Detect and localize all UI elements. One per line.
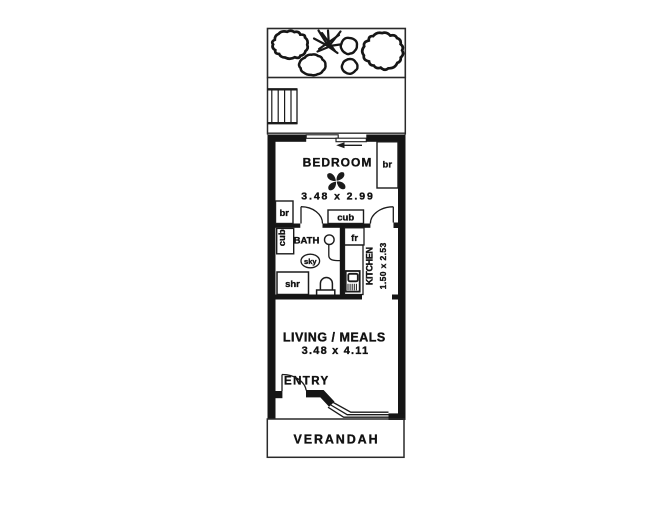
svg-text:cub: cub xyxy=(337,213,354,224)
svg-text:shr: shr xyxy=(285,279,300,290)
svg-text:br: br xyxy=(279,208,289,219)
svg-text:KITCHEN: KITCHEN xyxy=(364,247,374,285)
svg-text:LIVING / MEALS: LIVING / MEALS xyxy=(283,330,386,344)
svg-text:BATH: BATH xyxy=(294,236,320,247)
svg-text:VERANDAH: VERANDAH xyxy=(293,433,379,447)
svg-text:sky: sky xyxy=(304,257,317,266)
svg-text:3.48 x 2.99: 3.48 x 2.99 xyxy=(301,191,374,203)
svg-text:BEDROOM: BEDROOM xyxy=(303,156,373,170)
svg-text:1.50 x 2.53: 1.50 x 2.53 xyxy=(378,242,388,289)
svg-text:br: br xyxy=(383,159,393,170)
svg-text:cub: cub xyxy=(277,229,288,246)
svg-text:fr: fr xyxy=(351,233,358,244)
svg-text:3.48 x 4.11: 3.48 x 4.11 xyxy=(302,345,370,357)
svg-text:ENTRY: ENTRY xyxy=(284,376,330,388)
